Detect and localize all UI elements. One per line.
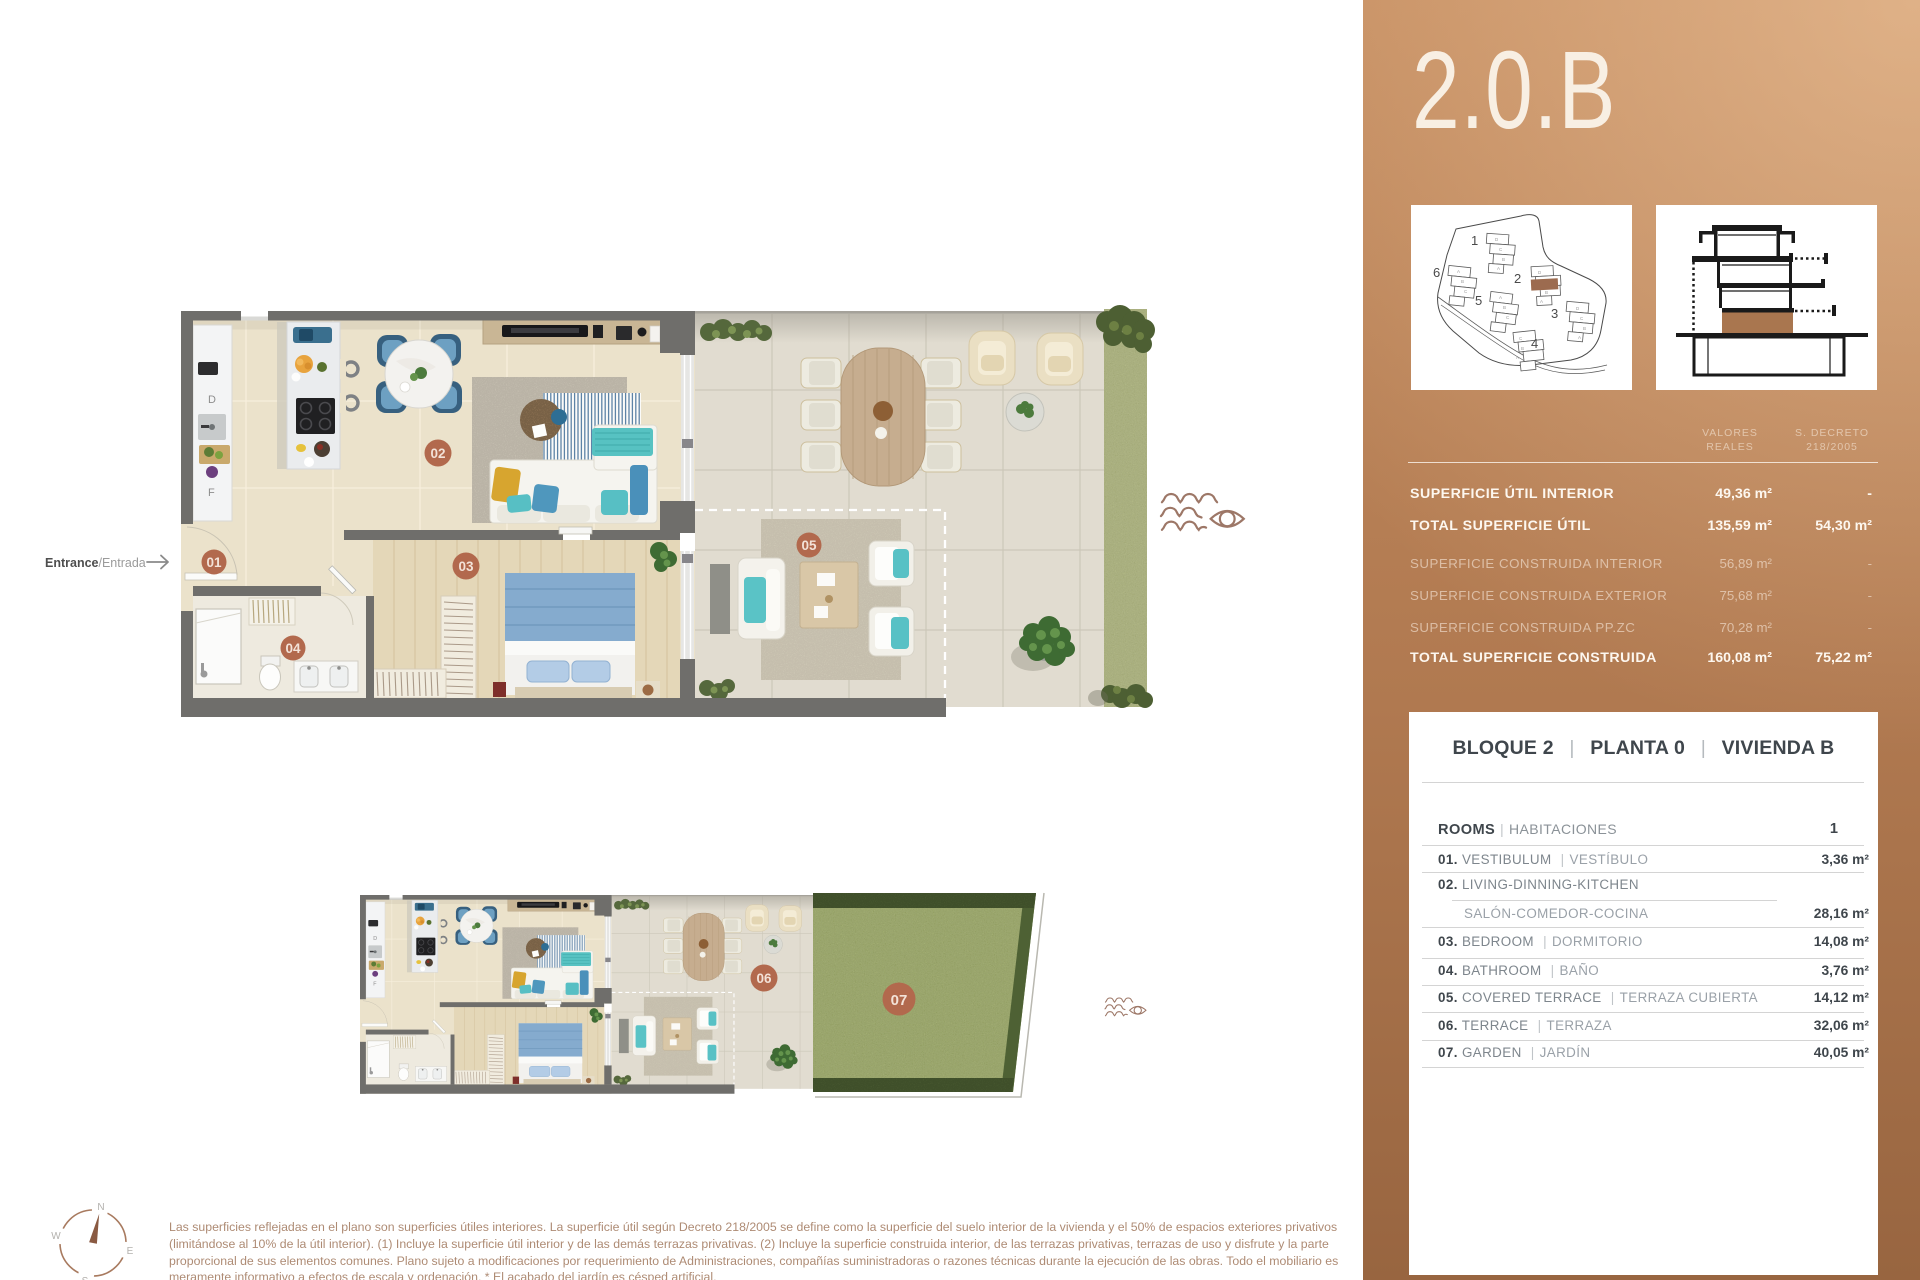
svg-text:A: A (1540, 299, 1543, 304)
svg-text:A: A (1499, 295, 1502, 300)
svg-text:07: 07 (891, 992, 908, 1009)
svg-text:Las superficies reflejadas en: Las superficies reflejadas en el plano s… (169, 1220, 1337, 1234)
svg-text:B: B (1583, 326, 1586, 331)
svg-text:S: S (82, 1276, 89, 1280)
svg-text:03: 03 (458, 559, 474, 574)
svg-text:B: B (1502, 257, 1505, 262)
svg-text:W: W (51, 1231, 61, 1242)
svg-text:meramente informativo a efecto: meramente informativo a efectos de escal… (169, 1270, 717, 1280)
svg-text:B: B (1521, 346, 1524, 351)
svg-text:E: E (127, 1246, 134, 1257)
svg-text:B: B (1545, 290, 1548, 295)
svg-text:A: A (1578, 335, 1581, 340)
svg-text:A: A (1497, 266, 1500, 271)
svg-text:proporcional de sus elementos: proporcional de sus elementos comunes. P… (169, 1254, 1338, 1268)
svg-text:4: 4 (1531, 336, 1538, 351)
svg-text:B: B (1461, 279, 1464, 284)
svg-text:6: 6 (1433, 265, 1440, 280)
svg-text:5: 5 (1475, 293, 1482, 308)
svg-text:N: N (97, 1202, 104, 1213)
svg-text:05: 05 (801, 538, 817, 553)
svg-text:Entrance/Entrada: Entrance/Entrada (45, 556, 146, 570)
svg-text:2: 2 (1514, 271, 1521, 286)
svg-text:02: 02 (430, 446, 445, 461)
svg-text:(limitándose al 10% de la útil: (limitándose al 10% de la útil interior)… (169, 1237, 1329, 1251)
svg-text:B: B (1503, 305, 1506, 310)
svg-text:04: 04 (285, 641, 301, 656)
svg-text:A: A (1516, 355, 1519, 360)
svg-text:1: 1 (1471, 233, 1478, 248)
svg-text:06: 06 (756, 971, 772, 986)
svg-text:3: 3 (1551, 306, 1558, 321)
svg-text:01: 01 (206, 555, 222, 570)
svg-text:A: A (1457, 269, 1460, 274)
